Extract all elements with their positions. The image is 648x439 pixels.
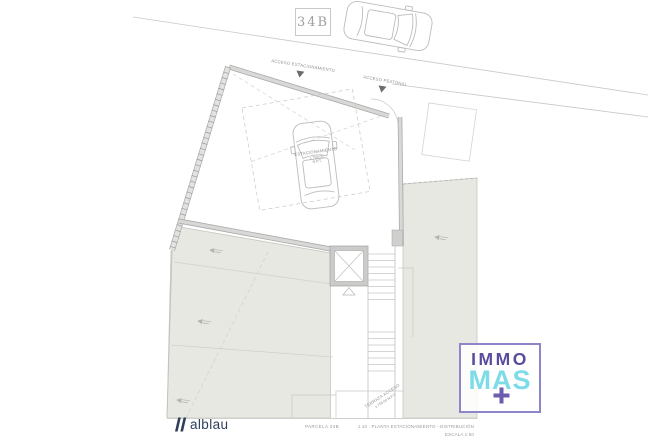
architect-logo-text: alblau bbox=[190, 417, 228, 432]
floor-plan-sheet: ACCESO ESTACIONAMIENTO ACCESO PEATONAL E… bbox=[0, 0, 648, 439]
elevator-shaft bbox=[330, 246, 368, 295]
architect-logo: alblau bbox=[174, 417, 228, 432]
road-edge-lines bbox=[133, 17, 648, 117]
neighbour-plot-outline bbox=[422, 103, 477, 161]
parking-access-arrow-icon bbox=[296, 70, 305, 78]
sheet-scale: ESCALA 1:50 bbox=[356, 432, 474, 437]
unit-number-box: 34B bbox=[295, 8, 331, 36]
label-estacionamiento-npt: N.P.T. bbox=[312, 159, 322, 164]
parked-car-plan bbox=[288, 120, 344, 211]
sheet-title-block: 1.10 . PLANTA ESTACIONAMIENTO - DISTRIBU… bbox=[356, 424, 474, 437]
label-acceso-peatonal: ACCESO PEATONAL bbox=[363, 74, 408, 87]
unit-number: 34B bbox=[297, 15, 329, 30]
label-acceso-estacionamiento: ACCESO ESTACIONAMIENTO bbox=[271, 58, 336, 73]
agency-logo: IMMO MAS bbox=[459, 343, 541, 413]
plus-icon bbox=[493, 387, 510, 404]
sheet-title: 1.10 . PLANTA ESTACIONAMIENTO - DISTRIBU… bbox=[356, 424, 474, 429]
green-landscape-areas bbox=[167, 178, 477, 418]
parcel-caption: PARCELA 34B bbox=[297, 424, 347, 429]
pedestrian-access-arrow-icon bbox=[377, 85, 386, 93]
street-car-plan bbox=[342, 0, 435, 56]
site-plan-drawing: ACCESO ESTACIONAMIENTO ACCESO PEATONAL E… bbox=[0, 0, 648, 439]
driveway-sight-lines bbox=[233, 74, 387, 162]
architect-logo-icon bbox=[174, 417, 187, 432]
